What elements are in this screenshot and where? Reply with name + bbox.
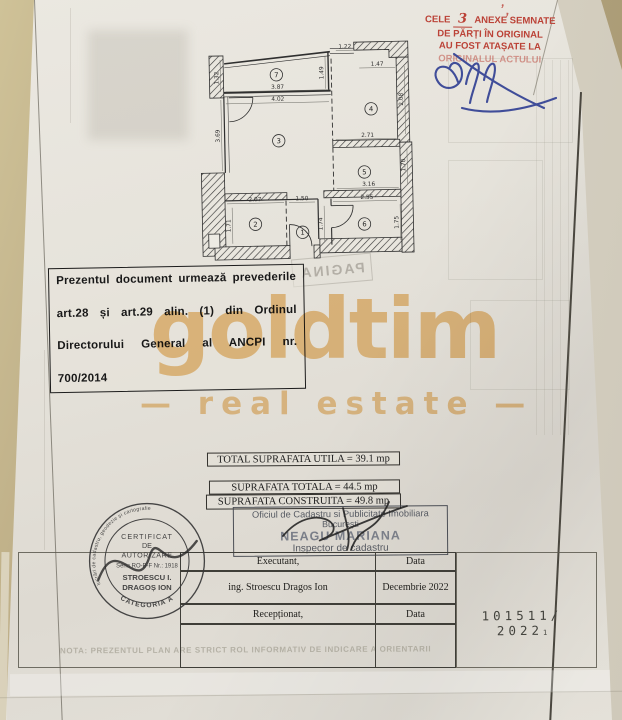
room-number: 2: [253, 221, 257, 229]
dimension-label: 1.49: [319, 66, 325, 79]
room-number: 7: [274, 71, 278, 79]
dimension-label: 1.71: [226, 219, 232, 232]
total-utila-row: TOTAL SUPRAFATA UTILA = 39.1 mp: [207, 451, 400, 466]
room-number: 4: [369, 105, 373, 113]
legal-line: art.28 și art.29 alin. (1) din Ordinul: [57, 302, 298, 339]
dimension-label: 1.70: [401, 158, 407, 171]
dimension-label: 1.50: [295, 196, 308, 202]
empty-cell: [180, 624, 376, 668]
legal-notice-box: Prezentul document urmează prevederile a…: [48, 264, 306, 394]
dimension-label: 1.22: [338, 44, 351, 50]
dimension-label: 2.07: [248, 197, 261, 203]
scanned-cadastral-document: { "colors": { "paper":"#e6e2d9", "fabric…: [0, 0, 622, 720]
executant-table: Executant, Data ing. Stroescu Dragos Ion…: [180, 552, 456, 668]
plan-dimension-labels: 1.323.874.021.491.221.472.082.713.691.70…: [214, 43, 409, 232]
executant-date: Decembrie 2022: [376, 571, 456, 604]
room-number: 5: [362, 168, 366, 176]
receptionat-label: Recepționat,: [180, 604, 376, 624]
bleedthrough-line: [70, 8, 71, 123]
dimension-label: 1.75: [394, 215, 400, 228]
svg-text:CATEGORIA A: CATEGORIA A: [119, 595, 175, 609]
legal-line: Directorului General al ANCPI nr.: [57, 334, 298, 371]
registration-number: 101511/ 20221: [452, 607, 592, 638]
room-number: 1: [300, 229, 304, 237]
data-label-2: Data: [376, 604, 456, 624]
dimension-label: 2.08: [399, 92, 405, 105]
total-totala-row: SUPRAFATA TOTALA = 44.5 mp: [209, 479, 400, 494]
stamp-name2: DRAGOȘ ION: [122, 583, 172, 592]
stamp-name1: STROESCU I.: [122, 573, 171, 582]
dimension-label: 1.32: [214, 71, 220, 84]
bleedthrough-line: [44, 350, 45, 550]
room-number: 6: [362, 220, 366, 228]
inspector-signature: [255, 496, 455, 566]
dimension-label: 3.69: [215, 129, 221, 142]
dimension-label: 2.55: [360, 195, 373, 201]
plan-doors: [229, 95, 354, 248]
stamp-category: CATEGORIA A: [119, 595, 175, 609]
dimension-label: 4.02: [271, 97, 284, 103]
red-stamp-line1: CELE 3 ANEXE SEMNATE: [424, 11, 556, 30]
empty-cell: [376, 624, 456, 668]
executant-name: ing. Stroescu Dragos Ion: [180, 571, 376, 604]
dimension-label: 1.47: [371, 62, 384, 68]
stamp-line2: DE: [142, 542, 152, 550]
stamp-line1: CERTIFICAT: [121, 533, 173, 541]
floor-plan: 1.323.874.021.491.221.472.082.713.691.70…: [194, 34, 437, 273]
room-number: 3: [276, 137, 280, 145]
bleedthrough-box: [448, 160, 543, 280]
dimension-label: 3.16: [362, 182, 375, 188]
handwritten-count: 3: [453, 11, 472, 27]
dimension-label: 2.71: [361, 133, 374, 139]
legal-line: Prezentul document urmează prevederile: [56, 269, 297, 306]
dimension-label: 3.87: [271, 85, 284, 91]
legal-line: 700/2014: [58, 367, 298, 388]
dimension-label: 1.74: [318, 217, 324, 230]
handwritten-signature-blue: [420, 46, 570, 122]
bleedthrough-patch: [88, 30, 188, 140]
authorization-round-stamp: Persoană autorizată de ANCPI să execute …: [86, 500, 208, 622]
